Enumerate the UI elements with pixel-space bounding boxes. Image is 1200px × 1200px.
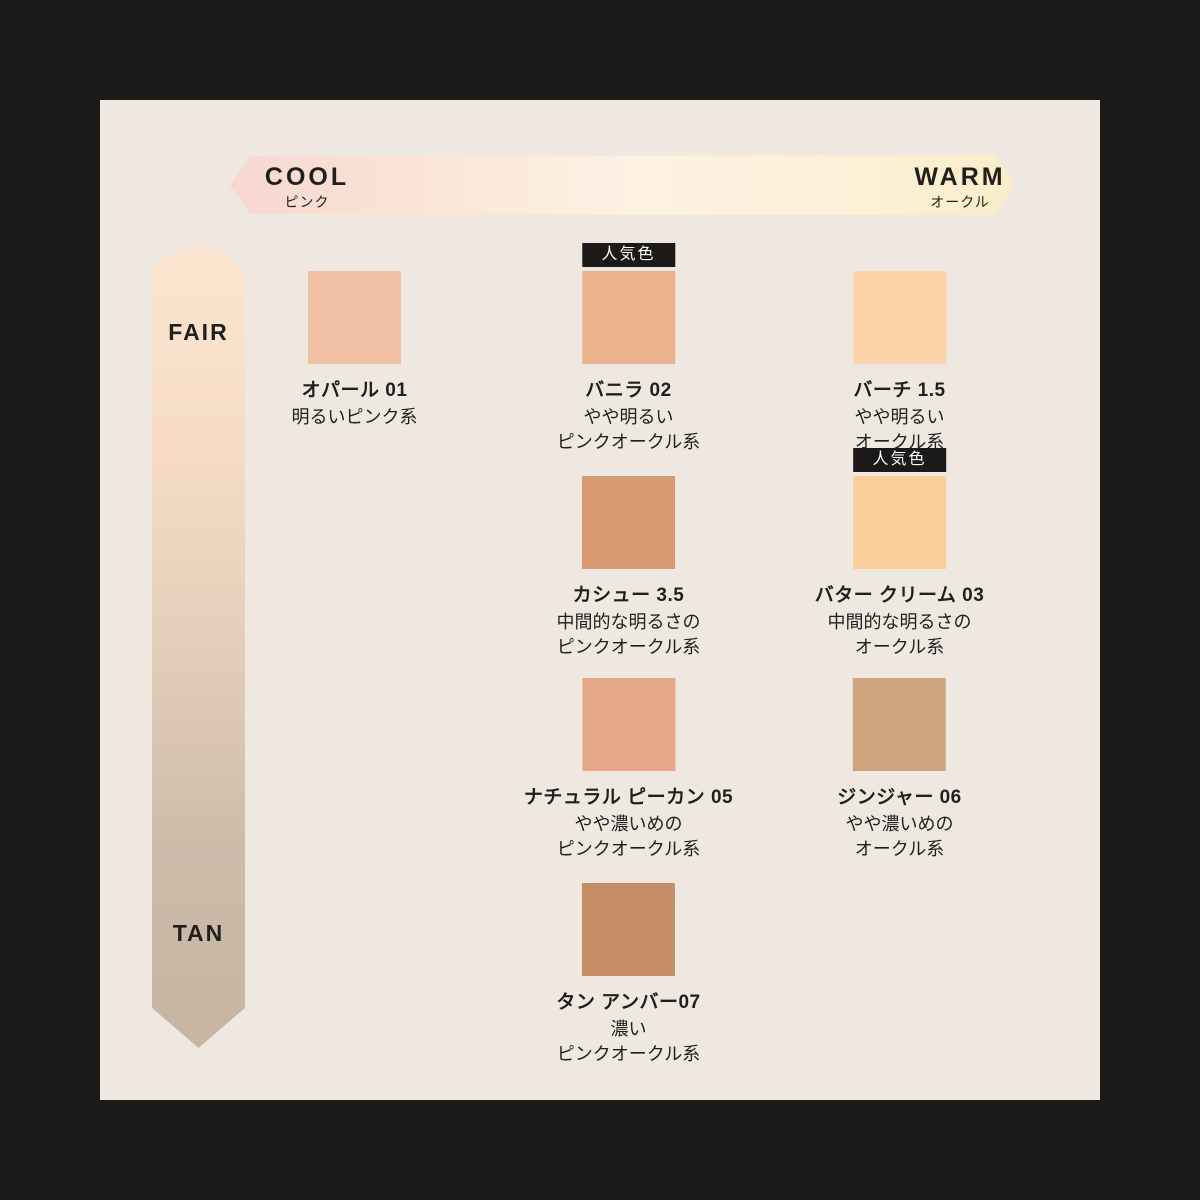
warm-label: WARM: [905, 164, 1015, 190]
shade-cell: 人気色 カシュー 3.5 中間的な明るさのピンクオークル系: [557, 448, 701, 660]
shade-name: バニラ 02: [585, 375, 671, 402]
shade-swatch: [308, 271, 401, 364]
popular-badge: 人気色: [853, 448, 946, 472]
shade-swatch: [853, 476, 946, 569]
shade-swatch: [853, 271, 946, 364]
shade-name: カシュー 3.5: [573, 580, 685, 607]
shade-name: タン アンバー07: [556, 987, 700, 1014]
shade-cell: 人気色 ジンジャー 06 やや濃いめのオークル系: [837, 650, 961, 862]
shade-cell: 人気色 オパール 01 明るいピンク系: [292, 243, 418, 430]
outer-black-frame: COOL ピンク WARM オークル FAIR TAN 人気色 オパール 01 …: [0, 0, 1200, 1200]
shade-cell: 人気色 バニラ 02 やや明るいピンクオークル系: [557, 243, 700, 455]
shade-name: ナチュラル ピーカン 05: [524, 782, 733, 809]
shade-swatch: [853, 678, 946, 771]
cool-axis-label: COOL ピンク: [252, 164, 362, 212]
popular-badge: 人気色: [582, 243, 675, 267]
cool-sublabel: ピンク: [252, 192, 362, 212]
shade-swatch: [582, 883, 675, 976]
shade-name: バーチ 1.5: [853, 375, 945, 402]
shade-name: オパール 01: [302, 375, 408, 402]
shade-chart-panel: COOL ピンク WARM オークル FAIR TAN 人気色 オパール 01 …: [100, 100, 1100, 1100]
shade-description: 濃いピンクオークル系: [557, 1017, 700, 1067]
cool-warm-gradient-arrow: COOL ピンク WARM オークル: [230, 155, 1015, 215]
shade-description: 明るいピンク系: [292, 405, 418, 430]
shade-name: ジンジャー 06: [837, 782, 961, 809]
warm-sublabel: オークル: [905, 192, 1015, 212]
shade-cell: 人気色 タン アンバー07 濃いピンクオークル系: [556, 855, 700, 1067]
shade-swatch: [582, 271, 675, 364]
shade-cell: 人気色 バター クリーム 03 中間的な明るさのオークル系: [815, 448, 985, 660]
shade-swatch: [582, 476, 675, 569]
fair-label: FAIR: [152, 319, 245, 346]
shade-cell: 人気色 バーチ 1.5 やや明るいオークル系: [853, 243, 946, 455]
warm-axis-label: WARM オークル: [905, 164, 1015, 212]
shade-cell: 人気色 ナチュラル ピーカン 05 やや濃いめのピンクオークル系: [524, 650, 733, 862]
shade-name: バター クリーム 03: [815, 580, 985, 607]
shade-swatch: [582, 678, 675, 771]
cool-label: COOL: [252, 164, 362, 190]
shade-description: やや濃いめのオークル系: [846, 812, 954, 862]
tan-label: TAN: [152, 920, 245, 947]
